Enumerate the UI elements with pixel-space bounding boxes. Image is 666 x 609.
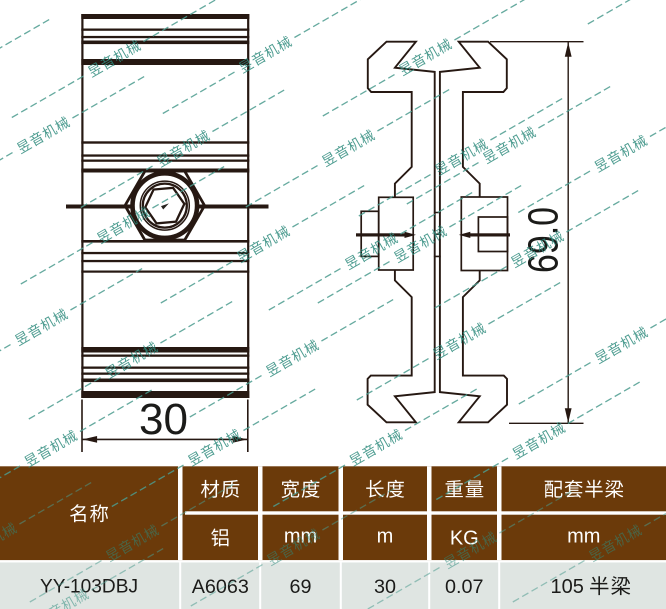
svg-text:m: m: [377, 526, 394, 548]
svg-text:69: 69: [289, 576, 311, 598]
svg-text:30: 30: [139, 396, 188, 444]
svg-text:YY-103DBJ: YY-103DBJ: [40, 577, 138, 598]
svg-text:69.0: 69.0: [521, 207, 568, 273]
svg-text:mm: mm: [567, 526, 600, 548]
svg-text:0.07: 0.07: [445, 576, 484, 598]
svg-text:A6063: A6063: [192, 576, 249, 598]
svg-text:KG: KG: [450, 528, 479, 550]
svg-text:105: 105: [551, 576, 584, 598]
